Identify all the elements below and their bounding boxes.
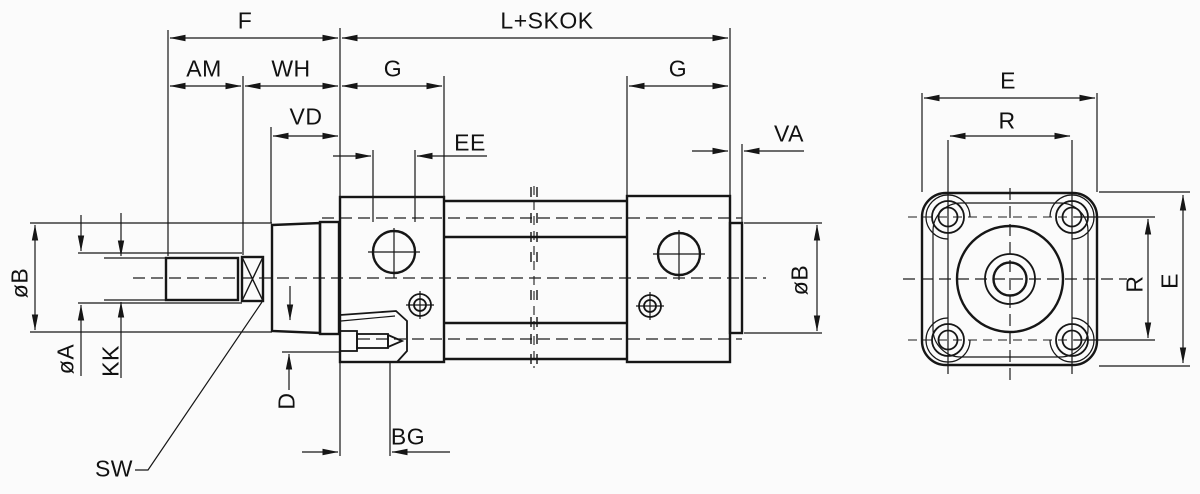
dim-label-kk: KK	[100, 345, 123, 377]
front-tierod-nut	[406, 291, 434, 319]
drawing-geometry	[0, 0, 1200, 494]
dim-label-dia-b-right: øB	[789, 265, 812, 295]
rod-thread-section	[166, 258, 238, 300]
rear-port	[653, 230, 705, 280]
extension-lines	[30, 28, 1190, 470]
dim-label-d: D	[276, 392, 299, 409]
dim-label-e-side: E	[1159, 273, 1182, 289]
dim-label-dia-a: øA	[55, 344, 78, 374]
rear-tierod-nut	[636, 292, 664, 320]
cushion-adjust-screw	[340, 331, 402, 351]
sw-leader-line	[135, 302, 262, 470]
dim-label-dia-b-left: øB	[9, 268, 32, 298]
barrel-and-tierods	[444, 201, 627, 359]
dim-label-va: VA	[774, 123, 804, 146]
dim-label-f: F	[238, 10, 253, 33]
dimension-lines	[35, 38, 1183, 452]
dim-label-am: AM	[186, 58, 222, 81]
dim-label-wh: WH	[271, 58, 310, 81]
dim-label-r-top: R	[998, 110, 1015, 133]
dim-label-vd: VD	[290, 106, 323, 129]
centerlines	[133, 186, 1127, 386]
dim-label-e-top: E	[1000, 70, 1016, 93]
dim-label-r-side: R	[1124, 275, 1147, 292]
dim-label-sw: SW	[95, 458, 133, 481]
dim-label-ee: EE	[454, 132, 486, 155]
dim-label-bg: BG	[391, 426, 425, 449]
cushion-screw-pocket	[340, 311, 407, 362]
dim-label-g-left: G	[384, 58, 402, 81]
front-port	[368, 228, 420, 278]
technical-drawing-canvas: F L+SKOK AM WH G G VD EE VA øB øA KK D S…	[0, 0, 1200, 494]
dim-label-l-skok: L+SKOK	[500, 10, 593, 33]
dim-label-g-right: G	[669, 58, 687, 81]
wrench-flats-cross	[242, 257, 263, 301]
cylinder-side-view	[166, 196, 742, 362]
